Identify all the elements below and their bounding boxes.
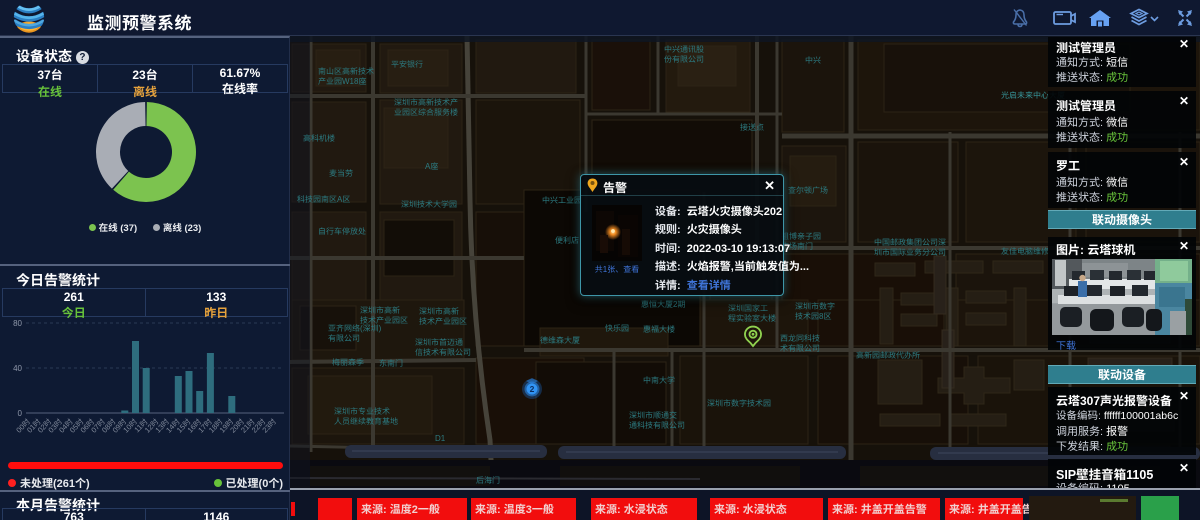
svg-text:80: 80 [13, 319, 22, 328]
svg-text:0: 0 [18, 409, 23, 418]
svg-text:40: 40 [13, 364, 22, 373]
svg-text:2: 2 [530, 384, 535, 394]
